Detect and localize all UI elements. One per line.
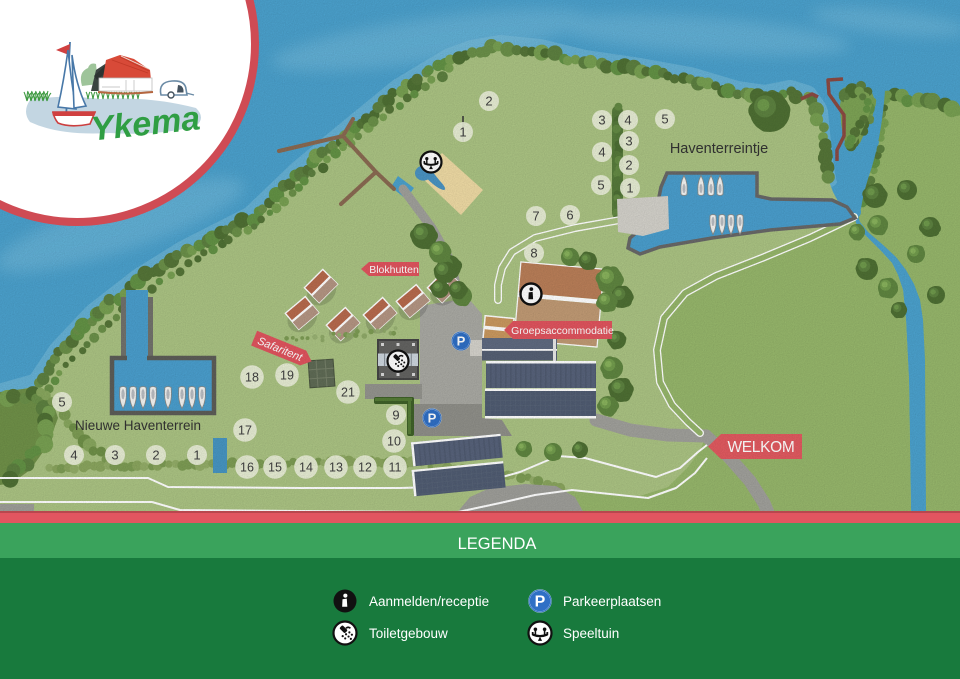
svg-text:P: P: [535, 594, 546, 611]
svg-text:Parkeerplaatsen: Parkeerplaatsen: [563, 594, 661, 609]
svg-text:Aanmelden/receptie: Aanmelden/receptie: [369, 594, 489, 609]
svg-text:Speeltuin: Speeltuin: [563, 626, 619, 641]
svg-text:Toiletgebouw: Toiletgebouw: [369, 626, 448, 641]
svg-text:LEGENDA: LEGENDA: [458, 535, 537, 553]
